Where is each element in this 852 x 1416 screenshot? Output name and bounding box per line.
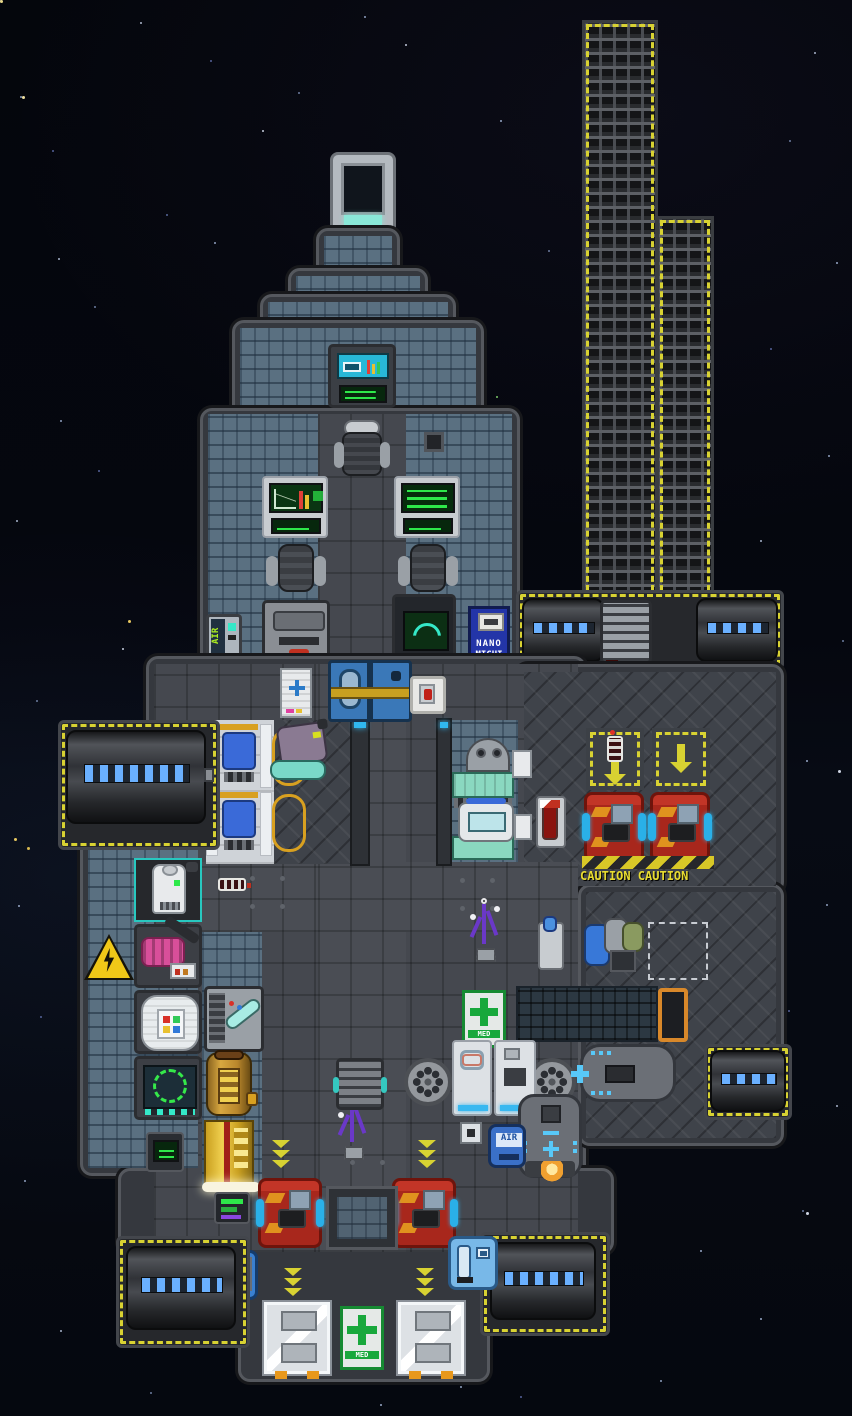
bridge-console-left-screen [269, 483, 323, 513]
fuel-tank-top-left[interactable] [522, 598, 604, 662]
bridge-console-right[interactable] [394, 476, 460, 538]
fire-extinguisher-cabinet[interactable] [536, 796, 566, 848]
engine-plus-icon [543, 1141, 559, 1157]
medbay-divider-wall [350, 718, 370, 866]
fuel-tank-bottom-left[interactable] [126, 1246, 236, 1330]
light-tube-fabricator[interactable] [204, 986, 264, 1052]
arrow-down-icon-2 [670, 744, 692, 773]
air-canister-label: AIR [496, 1133, 522, 1147]
small-status-console[interactable] [214, 1192, 250, 1224]
iv-drip-stand-2[interactable] [272, 794, 306, 852]
bridge-console-left[interactable] [262, 476, 328, 538]
engine-vertical[interactable] [518, 1094, 582, 1178]
empty-storage-pad [648, 922, 708, 980]
cell-charger-station[interactable] [134, 858, 202, 922]
wall-button-box[interactable] [460, 1122, 482, 1144]
corridor-studs [250, 876, 255, 881]
medbay-divider-wall-2 [436, 718, 452, 866]
secure-crate-2[interactable] [650, 792, 710, 862]
caution-stripe [582, 856, 714, 869]
arrow-down-icon-1 [604, 762, 626, 785]
energy-cell-item[interactable] [218, 878, 246, 891]
floor-fan-1[interactable] [404, 1058, 452, 1106]
freezer-unit-1[interactable] [452, 1040, 492, 1116]
secure-crate-3[interactable] [258, 1178, 322, 1248]
helm-console-keyboard [339, 385, 387, 403]
cryo-tube-horizontal[interactable] [580, 1044, 676, 1102]
engineering-console[interactable] [146, 1132, 184, 1172]
docking-port[interactable] [330, 152, 396, 236]
med-sign-bottom-label: MED [345, 1351, 379, 1359]
chevron-down-icon-4 [416, 1268, 434, 1296]
sleeper-pod[interactable] [452, 802, 532, 860]
caution-floor-text: CAUTION CAUTION [580, 869, 720, 885]
fuel-pump[interactable] [448, 1236, 498, 1290]
air-canister[interactable]: AIR [488, 1124, 526, 1168]
first-aid-cabinet[interactable] [280, 668, 312, 718]
docking-port-window [341, 163, 385, 215]
captain-chair[interactable] [334, 420, 390, 486]
cargo-pad-2 [652, 728, 710, 790]
central-airlock-door[interactable] [328, 660, 412, 722]
armory-dark-floor [516, 986, 658, 1042]
green-cross-icon-right [470, 998, 498, 1026]
chevron-down-icon-1 [272, 1140, 290, 1168]
truss-catwalk-extension [656, 216, 714, 604]
thruster-left [264, 1302, 330, 1374]
med-sign-right-label: MED [468, 1030, 500, 1038]
organ-processor[interactable] [134, 924, 202, 988]
med-sign-bottom: MED [340, 1306, 384, 1370]
starfield-bright [0, 0, 3, 3]
thruster-right [398, 1302, 464, 1374]
space-scene: NANO MICHI AIR KOCM [0, 0, 852, 1416]
kudzu-plant-1[interactable] [468, 898, 504, 962]
air-dispenser[interactable]: AIR [206, 614, 242, 660]
gold-engine-core[interactable] [204, 1120, 254, 1186]
fuel-tank-left[interactable] [66, 730, 206, 824]
truss-catwalk-vertical [582, 20, 658, 604]
engine-flame [541, 1161, 563, 1185]
fuel-tank-bottom-right[interactable] [490, 1242, 596, 1320]
fax-machine[interactable] [262, 600, 330, 658]
fuel-tank-top-right[interactable] [696, 598, 778, 662]
fire-alarm[interactable] [410, 676, 446, 714]
radar-console[interactable] [392, 594, 456, 662]
secure-crate-1[interactable] [584, 792, 644, 862]
helm-console-screen [337, 353, 389, 379]
radar-screen [403, 611, 449, 651]
gas-tank-pile[interactable] [584, 918, 648, 976]
maintenance-hatch[interactable] [326, 1186, 398, 1250]
battery-icon [607, 736, 623, 762]
bridge-console-right-keys [403, 518, 453, 534]
bridge-console-left-keys [271, 518, 321, 534]
nanomed-label-1: NANO [476, 639, 502, 649]
teleport-ring [153, 1069, 187, 1103]
wall-intercom[interactable] [424, 432, 444, 452]
engine-heat-exchanger[interactable] [600, 600, 652, 664]
airlock-frame-orange[interactable] [658, 988, 688, 1042]
pilot-chair-right[interactable] [398, 538, 458, 600]
water-cooler[interactable] [538, 922, 564, 970]
green-cross-icon-bottom [347, 1315, 377, 1345]
body-scanner[interactable] [452, 738, 532, 798]
brass-tank[interactable] [206, 1052, 252, 1116]
teleporter-pad[interactable] [134, 1056, 202, 1120]
helm-console[interactable] [328, 344, 396, 408]
cryo-plus-icon [571, 1065, 589, 1083]
cargo-pad-1 [586, 728, 644, 790]
nanomed-screen [478, 613, 504, 631]
docking-port-light [344, 215, 382, 225]
blue-cross-icon [289, 680, 305, 696]
pilot-chair-left[interactable] [266, 538, 326, 600]
bridge-console-right-screen [401, 483, 455, 513]
secure-crate-4[interactable] [392, 1178, 456, 1248]
chevron-down-icon-3 [284, 1268, 302, 1296]
operating-table[interactable] [270, 760, 326, 780]
centrifuge-machine[interactable] [134, 990, 202, 1054]
chevron-down-icon-2 [418, 1140, 436, 1168]
space-heater[interactable] [336, 1058, 384, 1110]
air-dispenser-label: AIR [211, 619, 225, 653]
fuel-tank-right[interactable] [710, 1050, 786, 1112]
